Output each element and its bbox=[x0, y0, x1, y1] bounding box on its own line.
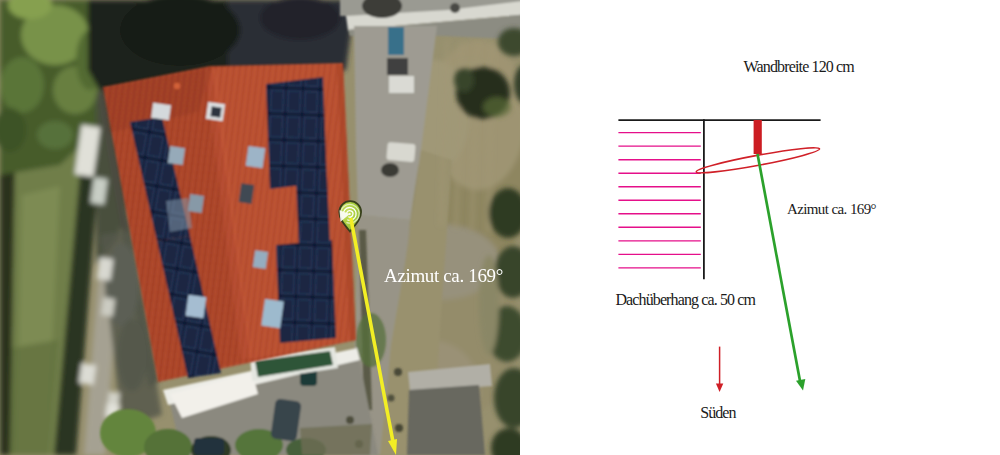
svg-text:Süden: Süden bbox=[700, 404, 736, 421]
svg-text:Wandbreite 120 cm: Wandbreite 120 cm bbox=[744, 58, 856, 75]
svg-text:Azimut ca. 169°: Azimut ca. 169° bbox=[384, 265, 503, 286]
svg-text:Dachüberhang ca. 50 cm: Dachüberhang ca. 50 cm bbox=[615, 291, 756, 309]
svg-text:Azimut ca. 169°: Azimut ca. 169° bbox=[787, 201, 877, 217]
